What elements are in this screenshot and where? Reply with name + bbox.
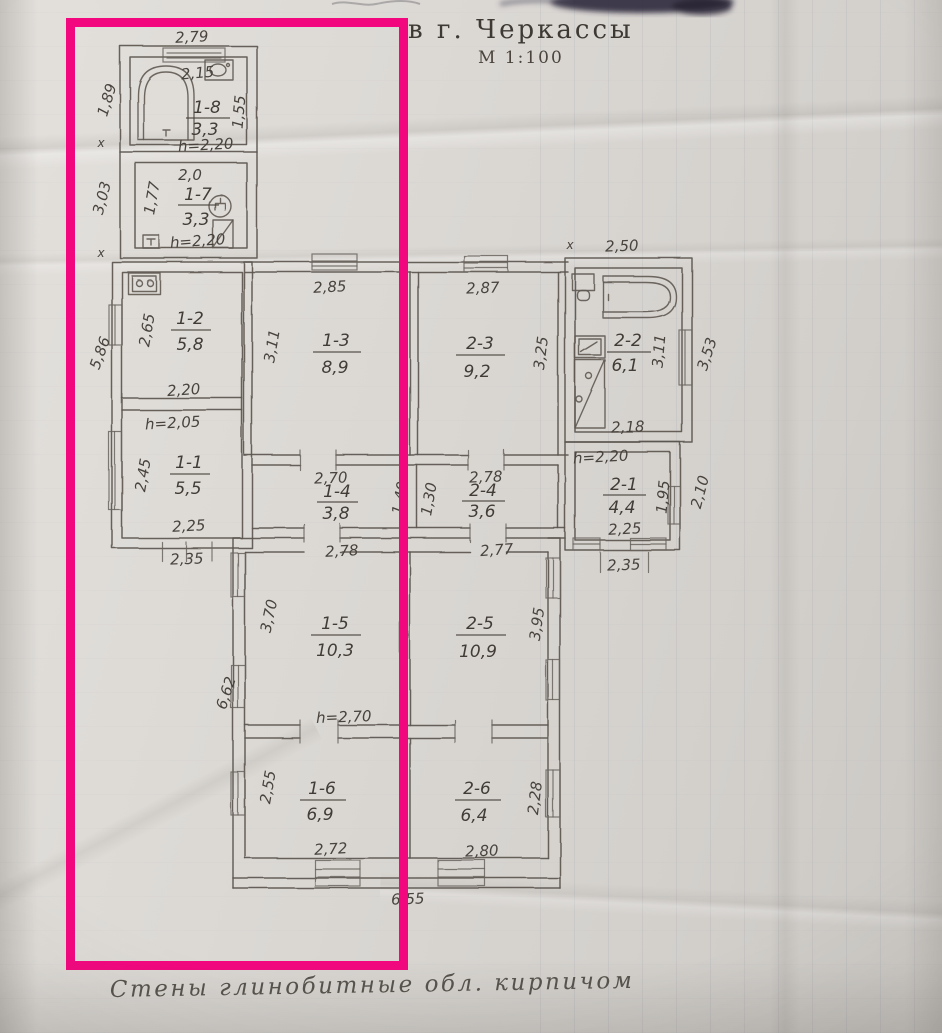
washing-machine-icon	[575, 360, 605, 428]
dim-label: 2,80	[465, 841, 499, 860]
scanned-floorplan-photo: 2,79 2,15 1,89 1,55 h=2,20 2,0 1,77 3,03…	[0, 0, 942, 1033]
room-area-label: 3,6	[468, 502, 495, 522]
scale-label: М 1:100	[478, 48, 564, 68]
room-id-label: 2-4	[469, 481, 497, 501]
footnote: Стены глинобитные обл. кирпичом	[110, 968, 635, 1003]
room-area-label: 6,1	[611, 356, 638, 376]
dim-label: 3,25	[530, 335, 552, 370]
room-id-label: 2-5	[466, 614, 494, 634]
dim-label: 2,25	[608, 519, 642, 539]
room-label-2-6: 2-6 6,4	[455, 779, 501, 826]
dim-label: 2,28	[524, 780, 546, 815]
room-label-2-4: 2-4 3,6	[462, 481, 505, 522]
dim-label: 1,95	[653, 480, 674, 515]
dim-label: 3,95	[526, 606, 548, 642]
dim-label: 1,30	[417, 481, 441, 517]
cut-off-pencil-scribble	[332, 1, 420, 5]
room-id-label: 2-3	[466, 334, 494, 354]
dim-label: 2,77	[479, 540, 514, 560]
dim-label: 2,35	[607, 555, 641, 574]
room-area-label: 10,9	[459, 642, 497, 662]
room-area-label: 6,4	[460, 806, 487, 826]
x-mark: x	[565, 238, 574, 252]
dim-label: 3,53	[693, 335, 720, 372]
room-label-2-2: 2-2 6,1	[607, 331, 651, 376]
room-label-2-1: 2-1 4,4	[603, 475, 646, 518]
room-id-label: 2-1	[610, 475, 638, 495]
page-title: в г. Черкассы	[408, 15, 634, 45]
room-area-label: 9,2	[463, 362, 490, 382]
bathtub-icon	[603, 276, 676, 318]
dim-label: 3,11	[649, 334, 670, 369]
room-label-2-5: 2-5 10,9	[456, 614, 506, 662]
sink-icon	[575, 336, 605, 358]
dim-label: 2,87	[466, 278, 500, 297]
room-id-label: 2-2	[614, 331, 642, 351]
ink-smudge	[500, 0, 734, 15]
height-label: h=2,20	[573, 447, 629, 468]
room-id-label: 2-6	[463, 779, 491, 799]
dim-label: 2,18	[611, 417, 645, 436]
dim-label: 2,50	[605, 236, 639, 255]
dim-label: 2,10	[687, 474, 713, 511]
room-area-label: 4,4	[608, 498, 635, 518]
highlight-rectangle	[66, 18, 408, 970]
room-label-2-3: 2-3 9,2	[456, 334, 505, 382]
